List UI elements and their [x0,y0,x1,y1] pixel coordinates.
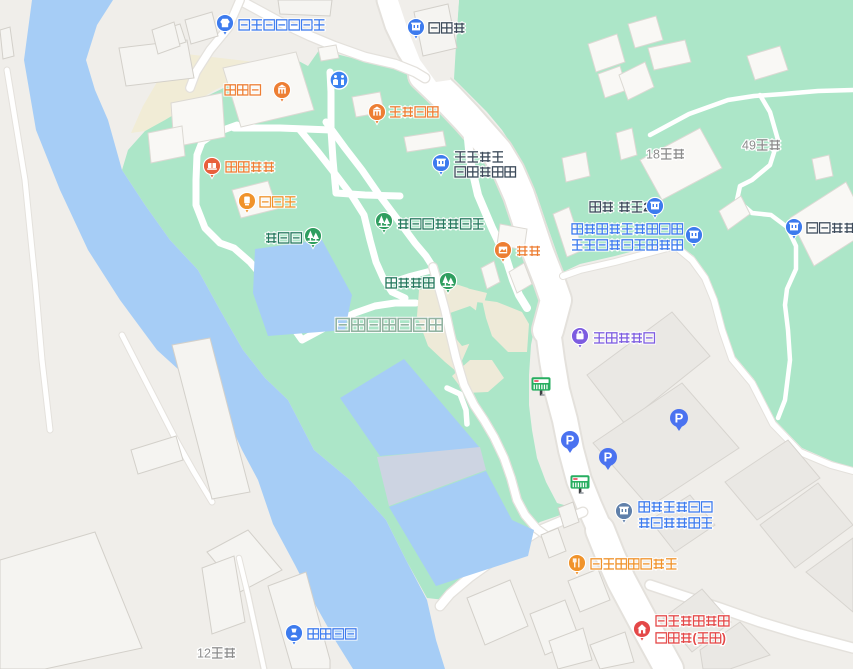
svg-text:12: 12 [197,647,211,661]
svg-text:49: 49 [742,139,756,153]
svg-text:P: P [566,433,575,448]
svg-text:P: P [675,411,684,426]
svg-text:P: P [604,450,613,465]
svg-text:18: 18 [646,148,660,162]
svg-text:): ) [722,632,726,646]
